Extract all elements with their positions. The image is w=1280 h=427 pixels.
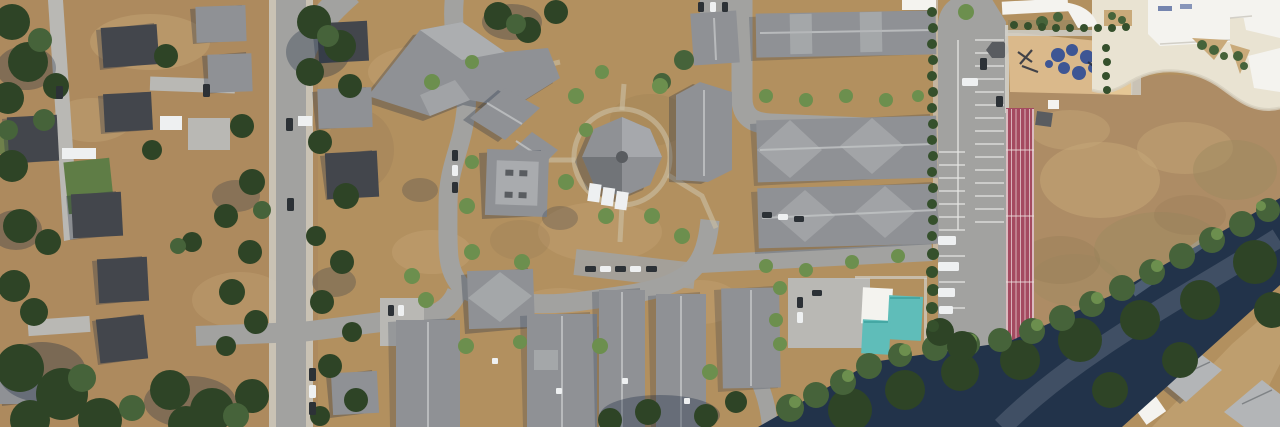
track-shed [1035, 111, 1053, 127]
aerial-photo [0, 0, 1280, 427]
aerial-photo-canvas [0, 0, 1280, 427]
